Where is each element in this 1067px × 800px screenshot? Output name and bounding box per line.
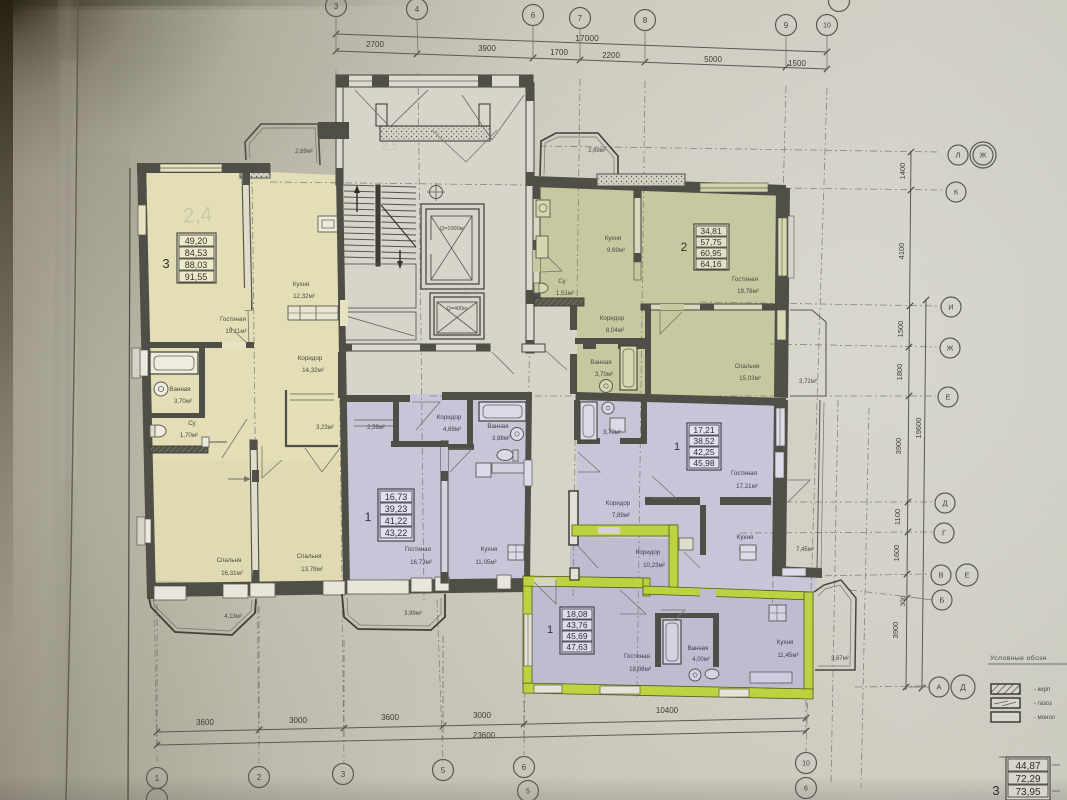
svg-text:10: 10 [823, 23, 831, 30]
svg-text:6: 6 [522, 763, 527, 772]
svg-text:Ж: Ж [980, 151, 987, 160]
svg-text:2: 2 [681, 240, 688, 254]
svg-text:2: 2 [257, 773, 262, 782]
svg-text:Спальня: Спальня [735, 363, 760, 370]
svg-text:10400: 10400 [656, 706, 679, 715]
svg-text:15,03м²: 15,03м² [739, 375, 761, 382]
svg-text:3,72м²: 3,72м² [799, 379, 817, 385]
svg-text:1400: 1400 [898, 163, 907, 180]
svg-text:11,05м²: 11,05м² [475, 559, 496, 566]
svg-text:14,32м²: 14,32м² [302, 367, 324, 374]
svg-text:3600: 3600 [381, 713, 399, 722]
svg-text:Ванная: Ванная [169, 386, 190, 393]
svg-text:4,00м²: 4,00м² [692, 657, 710, 663]
svg-text:1100: 1100 [893, 509, 902, 525]
svg-text:Кухня: Кухня [605, 235, 622, 242]
svg-text:Е: Е [964, 571, 969, 580]
svg-text:Гостиная: Гостиная [732, 276, 758, 283]
svg-text:- газоз: - газоз [1034, 701, 1052, 707]
svg-text:2700: 2700 [366, 40, 384, 49]
svg-text:60,95: 60,95 [700, 248, 722, 258]
svg-text:4: 4 [415, 5, 420, 14]
svg-text:3,98м²: 3,98м² [492, 435, 510, 442]
svg-text:10,23м²: 10,23м² [643, 562, 665, 569]
svg-text:1,51м²: 1,51м² [556, 290, 574, 297]
svg-text:91,55: 91,55 [185, 272, 208, 282]
svg-text:Ванная: Ванная [688, 646, 709, 652]
svg-text:3: 3 [341, 770, 346, 779]
svg-text:3,99м²: 3,99м² [404, 611, 422, 617]
svg-text:1: 1 [547, 624, 553, 636]
svg-text:64,16: 64,16 [700, 259, 722, 269]
svg-text:8,04м²: 8,04м² [606, 327, 624, 334]
svg-text:1500: 1500 [896, 321, 905, 338]
svg-text:Гостиная: Гостиная [731, 470, 757, 477]
svg-text:Q=400кг: Q=400кг [446, 306, 467, 312]
svg-text:1: 1 [155, 774, 160, 783]
svg-text:1700: 1700 [550, 48, 568, 57]
svg-text:Б: Б [940, 596, 945, 605]
svg-text:84,53: 84,53 [185, 248, 208, 258]
svg-text:43,76: 43,76 [566, 620, 588, 630]
svg-text:49,20: 49,20 [185, 236, 208, 246]
svg-text:23600: 23600 [473, 731, 496, 740]
svg-text:3,23м²: 3,23м² [316, 425, 334, 431]
svg-text:Гостиная: Гостиная [220, 316, 246, 323]
svg-text:13,78м²: 13,78м² [301, 566, 323, 573]
svg-text:6: 6 [804, 786, 808, 793]
svg-text:72,29: 72,29 [1015, 774, 1040, 785]
svg-text:5000: 5000 [704, 55, 722, 64]
svg-text:42,25: 42,25 [693, 447, 715, 457]
svg-text:47,63: 47,63 [566, 642, 588, 652]
svg-text:88,03: 88,03 [185, 260, 208, 270]
svg-text:Д: Д [960, 683, 966, 692]
svg-text:2200: 2200 [602, 51, 620, 60]
svg-text:Ж: Ж [947, 344, 954, 353]
svg-text:45,69: 45,69 [566, 631, 588, 641]
svg-text:17000: 17000 [575, 33, 599, 43]
svg-text:А: А [936, 683, 941, 692]
svg-text:39,23: 39,23 [385, 504, 408, 514]
svg-text:5: 5 [526, 789, 530, 796]
svg-text:Коридор: Коридор [600, 315, 625, 322]
svg-text:3900: 3900 [891, 622, 900, 639]
svg-text:3900: 3900 [894, 438, 903, 455]
svg-text:3,70м²: 3,70м² [603, 430, 621, 436]
svg-text:300: 300 [900, 595, 907, 606]
svg-text:17,21м²: 17,21м² [736, 483, 758, 490]
svg-text:8: 8 [643, 16, 648, 25]
svg-text:Г: Г [942, 529, 946, 538]
svg-text:3,70м²: 3,70м² [174, 398, 192, 405]
svg-text:4,13м²: 4,13м² [224, 614, 242, 620]
svg-text:17,21: 17,21 [693, 425, 715, 435]
svg-text:5: 5 [441, 766, 446, 775]
svg-text:1: 1 [365, 510, 372, 524]
svg-text:3600: 3600 [196, 718, 214, 727]
svg-text:3: 3 [334, 2, 339, 11]
svg-text:К: К [954, 188, 959, 197]
svg-text:19,11м²: 19,11м² [225, 328, 246, 335]
svg-text:4100: 4100 [897, 243, 906, 260]
svg-text:7: 7 [578, 14, 583, 23]
svg-text:Кухня: Кухня [737, 534, 754, 541]
svg-text:38,52: 38,52 [693, 436, 715, 446]
svg-text:16,73м²: 16,73м² [410, 559, 432, 566]
svg-text:И: И [948, 303, 953, 312]
svg-text:3900: 3900 [478, 44, 496, 53]
svg-text:12,32м²: 12,32м² [293, 293, 315, 300]
svg-text:Су: Су [558, 278, 566, 285]
svg-text:Су: Су [188, 420, 196, 427]
svg-text:1: 1 [674, 441, 680, 453]
svg-text:Ванная: Ванная [590, 359, 611, 366]
svg-text:Q=1000кг: Q=1000кг [440, 226, 464, 232]
svg-text:Кухня: Кухня [293, 281, 310, 288]
svg-text:57,75: 57,75 [700, 237, 722, 247]
svg-text:19600: 19600 [914, 418, 923, 439]
svg-text:Спальня: Спальня [297, 553, 322, 560]
svg-text:16,31м²: 16,31м² [221, 570, 243, 577]
svg-text:9: 9 [784, 21, 789, 30]
svg-text:2,69м²: 2,69м² [588, 148, 606, 154]
svg-text:3000: 3000 [473, 711, 491, 720]
svg-text:3,70м²: 3,70м² [595, 371, 613, 378]
svg-text:2,6: 2,6 [461, 284, 479, 299]
svg-text:- кирп: - кирп [1034, 687, 1050, 693]
svg-text:Условные обозн: Условные обозн [990, 654, 1047, 662]
svg-text:2,4: 2,4 [182, 203, 213, 228]
svg-text:Коридор: Коридор [636, 549, 661, 556]
svg-text:43,22: 43,22 [385, 528, 408, 538]
svg-text:Гостиная: Гостиная [405, 546, 431, 553]
svg-text:7,45м²: 7,45м² [796, 547, 814, 553]
svg-text:41,22: 41,22 [385, 516, 408, 526]
svg-text:44,87: 44,87 [1015, 761, 1040, 772]
svg-text:10: 10 [802, 761, 810, 768]
svg-text:Ванная: Ванная [487, 423, 508, 430]
svg-text:3: 3 [992, 783, 999, 798]
svg-text:Гостиная: Гостиная [624, 653, 650, 660]
svg-text:19,78м²: 19,78м² [737, 288, 759, 295]
svg-text:Коридор: Коридор [298, 355, 323, 362]
svg-text:3: 3 [162, 256, 169, 271]
svg-text:18,08: 18,08 [566, 609, 588, 619]
svg-text:Спальня: Спальня [217, 557, 242, 564]
svg-text:Коридор: Коридор [437, 414, 462, 421]
svg-text:1800: 1800 [895, 364, 904, 381]
svg-text:11,45м²: 11,45м² [777, 652, 798, 659]
svg-text:16,73: 16,73 [385, 492, 408, 502]
svg-text:34,81: 34,81 [700, 226, 722, 236]
svg-text:Е: Е [945, 393, 950, 402]
svg-text:2,59м²: 2,59м² [367, 425, 385, 431]
svg-text:Кухня: Кухня [777, 639, 794, 646]
svg-text:Л: Л [956, 151, 961, 160]
svg-text:- монол: - монол [1034, 715, 1056, 721]
svg-text:1600: 1600 [892, 545, 901, 562]
svg-text:1,70м²: 1,70м² [180, 432, 198, 439]
svg-text:45,98: 45,98 [693, 458, 715, 468]
svg-text:18,08м²: 18,08м² [629, 666, 651, 673]
svg-text:7,89м²: 7,89м² [612, 512, 630, 519]
svg-text:2,5: 2,5 [381, 139, 399, 154]
svg-text:3000: 3000 [289, 716, 307, 725]
svg-text:4,69м²: 4,69м² [443, 426, 461, 433]
svg-text:В: В [938, 571, 943, 580]
svg-text:1500: 1500 [788, 59, 806, 68]
svg-text:Д: Д [942, 499, 947, 508]
svg-text:3,67м²: 3,67м² [831, 656, 849, 662]
svg-text:Кухня: Кухня [481, 546, 498, 553]
svg-text:Коридор: Коридор [606, 500, 631, 507]
svg-text:73,95: 73,95 [1015, 787, 1040, 798]
svg-text:6: 6 [531, 11, 536, 20]
svg-text:9,69м²: 9,69м² [607, 247, 625, 254]
svg-text:2,69м²: 2,69м² [295, 149, 313, 155]
